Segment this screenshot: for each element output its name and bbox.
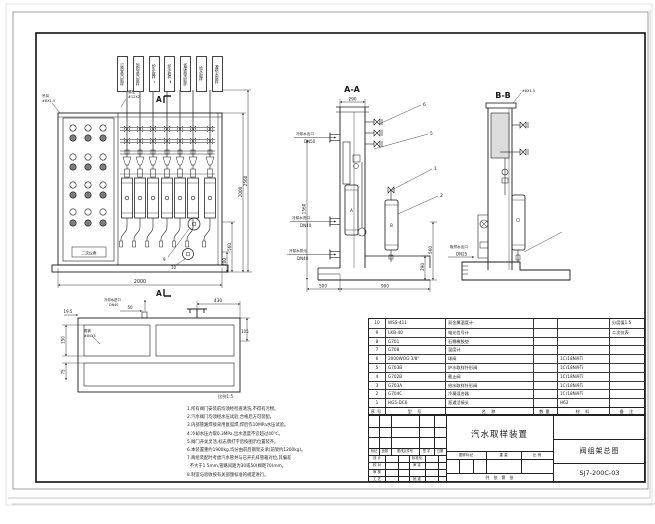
bb-spec-label: #8X1.5 <box>522 89 535 93</box>
lifting-spec: #8X1.5 <box>42 99 55 103</box>
parts-cell: 分度值1.5 <box>609 319 645 328</box>
titleblock-line <box>446 459 553 460</box>
parts-cell: LKB-40 <box>385 329 445 337</box>
aa-callout-5: 5 <box>430 131 433 137</box>
plan-angle-label: 角钢 <box>84 328 91 333</box>
pipe-tag: 省煤器水取样 <box>180 56 191 92</box>
parts-row: 10WSS-411双金属温度计分度值1.5 <box>369 319 644 328</box>
parts-cell: 5 <box>369 364 385 372</box>
parts-cell: 炉水取样针形阀 <box>445 364 533 372</box>
note-line: 5.阀门开关灵活,标志牌打字后按图示位置装齐。 <box>187 439 317 447</box>
stamp-header-weight: 重 量 <box>486 451 521 459</box>
parts-cell: G702B <box>385 373 445 381</box>
titleblock-line <box>553 416 554 483</box>
drawing-number: SJ7-200C-03 <box>553 463 646 482</box>
parts-row: 2G704C冷凝混合器1Cr18Ni9Ti <box>369 389 644 398</box>
parts-cell: 石棉橡胶垫 <box>445 338 533 346</box>
aa-dim-290: 290 <box>349 97 357 102</box>
parts-cell: 给水取样针形阀 <box>445 382 533 390</box>
sign-row-label: 设 计 <box>369 455 385 462</box>
aa-port-drain-dn: DN40 <box>297 256 309 261</box>
parts-cell: 9 <box>369 329 385 337</box>
parts-cell <box>533 319 557 328</box>
parts-cell: 二次仪表 <box>609 329 645 337</box>
rev-header-cell: 标记 <box>369 448 379 455</box>
rev-header-cell: 签 字 <box>419 448 434 455</box>
pipe-tag: 过热蒸汽取样 <box>117 56 128 92</box>
parts-cell: G708 <box>385 346 445 354</box>
parts-row: 62000WOG 3/8"球阀1Cr18Ni9Ti <box>369 354 644 363</box>
aa-dim-500: 500 <box>319 284 327 289</box>
note-line: 2.汽水阀门均须经水压试验,合格后方可装配。 <box>187 414 317 422</box>
parts-cell: 10 <box>369 319 385 328</box>
plan-dim-105: 105 <box>241 329 249 334</box>
bb-title: B-B <box>495 91 511 100</box>
plan-dim-150: 150 <box>61 336 66 344</box>
parts-cell <box>533 373 557 381</box>
parts-cell: 7 <box>369 346 385 354</box>
aa-callout-2: 2 <box>440 193 443 199</box>
stamp-header-scale: 比 例 <box>521 451 553 459</box>
parts-cell: 1Cr18Ni9Ti <box>557 382 609 390</box>
parts-cell <box>533 399 557 407</box>
rev-header-cell: 日期 <box>434 448 446 455</box>
titleblock-line <box>385 455 386 483</box>
parts-row: 3G703A给水取样针形阀1Cr18Ni9Ti <box>369 381 644 390</box>
titleblock-line <box>446 473 553 474</box>
parts-cell: 2000WOG 3/8" <box>385 355 445 363</box>
parts-row: 9LKB-40电光信号计二次仪表 <box>369 328 644 337</box>
parts-cell: 直通活接头 <box>445 399 533 407</box>
aa-port-in-dn: DN40 <box>300 223 312 228</box>
aa-dim-1560: 1560 <box>302 203 307 214</box>
note-line: 6.本装置重约1900kg,均分由前后钢架支承(前架约1200kg)。 <box>187 447 317 455</box>
plan-dim-50: 50 <box>127 305 133 310</box>
rev-header-cell: 更改文件号 <box>391 448 419 455</box>
sign-row-label: 标准化 <box>409 455 425 462</box>
callout-10: 10 <box>171 265 177 270</box>
dim-2000: 2000 <box>238 186 243 197</box>
dim-200: 200 <box>222 258 227 266</box>
aa-port-out-name: 冷却水出口 <box>296 131 314 136</box>
plan-dim-430: 430 <box>214 298 223 304</box>
aa-port-in-name: 冷却水进口 <box>292 215 310 220</box>
aa-callout-6: 6 <box>423 102 426 108</box>
note-line: 8.制造与验收按有关部颁标准的规定进行。 <box>187 472 317 480</box>
pipe-tag: 给水取样 <box>196 56 207 92</box>
bolt-spec: #12X2 <box>128 95 140 99</box>
note-line: 不大于1.5mm,管路间距为30或50(阀距70)mm。 <box>187 463 317 471</box>
parts-cell <box>609 364 645 372</box>
parts-cell <box>533 382 557 390</box>
parts-cell: 温度计 <box>445 346 533 354</box>
parts-table: 10WSS-411双金属温度计分度值1.59LKB-40电光信号计二次仪表8G7… <box>368 318 645 415</box>
parts-cell: 1Cr18Ni9Ti <box>557 355 609 363</box>
callout-9: 9 <box>163 257 166 262</box>
dim-560: 560 <box>227 243 232 251</box>
parts-cell: G703A <box>385 382 445 390</box>
panel-box-label: 二次仪表 <box>81 251 96 256</box>
parts-cell: HG5-DC6 <box>385 399 445 407</box>
sign-row-label: 批 准 <box>409 476 425 483</box>
titleblock-line <box>459 459 460 473</box>
parts-cell: 1 <box>369 399 385 407</box>
aa-vessel-b: B <box>390 223 393 228</box>
parts-cell: WSS-411 <box>385 319 445 328</box>
parts-row: 1HG5-DC6直通活接头H62 <box>369 398 644 407</box>
titleblock-line <box>446 451 553 452</box>
titleblock-line <box>438 455 439 483</box>
parts-cell: 1Cr18Ni9Ti <box>557 364 609 372</box>
stamp-header-mark: 图样标记 <box>446 451 486 459</box>
parts-cell: 8 <box>369 338 385 346</box>
titleblock-line <box>398 455 399 483</box>
lifting-label: 吊耳 <box>42 93 49 98</box>
parts-cell: 截止阀 <box>445 373 533 381</box>
note-line: 4.冷却水压力取0.3MPa,出水温度不宜超过40℃。 <box>187 431 317 439</box>
title-block: 汽水取样装置 图样标记 重 量 比 例 共 张 第 张 阀组架总图 SJ7-20… <box>368 415 645 482</box>
aa-title: A-A <box>344 85 361 94</box>
parts-cell: 电光信号计 <box>445 329 533 337</box>
parts-cell <box>533 390 557 398</box>
titleblock-line <box>553 439 646 440</box>
dim-width: 2000 <box>134 279 146 285</box>
aa-dim-290b: 290 <box>420 263 425 271</box>
plan-dim-19_5: 19.5 <box>64 309 73 314</box>
note-line: 1.所有阀门安装前均须经检查清洗,不得有污物。 <box>187 406 317 414</box>
parts-cell <box>609 373 645 381</box>
parts-cell: 1Cr18Ni9Ti <box>557 373 609 381</box>
parts-row: 7G708温度计 <box>369 345 644 354</box>
sign-row-label: 校 对 <box>369 462 385 469</box>
sign-row-label: 审 定 <box>409 462 425 469</box>
parts-cell: 6 <box>369 355 385 363</box>
section-a-bottom: A <box>156 289 162 298</box>
parts-cell <box>557 338 609 346</box>
pipe-tag: 凝结水取样 <box>212 56 223 92</box>
note-line: 7.两组装配时考虑汽水管并与已开孔排管箱对位,其偏差 <box>187 455 317 463</box>
note-line: 3.内部管路焊接采用氩弧焊,焊后作10MPa水压试验。 <box>187 422 317 430</box>
parts-cell <box>609 355 645 363</box>
parts-cell <box>533 329 557 337</box>
aa-callout-1: 1 <box>434 166 437 172</box>
parts-cell <box>533 355 557 363</box>
notes-block: 1.所有阀门安装前均须经检查清洗,不得有污物。2.汽水阀门均须经水压试验,合格后… <box>187 406 317 480</box>
pipe-tag: 炉水取样Ⅱ <box>164 56 175 92</box>
aa-port-out-dn: DN50 <box>304 139 316 144</box>
titleblock-line <box>553 463 646 464</box>
section-a-top: A <box>156 95 162 104</box>
titleblock-title: 汽水取样装置 <box>446 416 553 451</box>
aa-view <box>287 99 438 292</box>
plan-view <box>62 300 250 392</box>
rev-header-cell: 处数 <box>379 448 391 455</box>
titleblock-line <box>486 451 487 473</box>
pipe-tag: 饱和蒸汽取样 <box>133 56 144 92</box>
parts-cell: 2 <box>369 390 385 398</box>
sign-row-label: 工 艺 <box>369 476 385 483</box>
aa-vessel-a: A <box>350 208 353 213</box>
aa-dim-900: 900 <box>381 284 389 289</box>
titleblock-line <box>521 451 522 473</box>
parts-cell <box>557 319 609 328</box>
parts-cell: 双金属温度计 <box>445 319 533 328</box>
parts-cell <box>609 399 645 407</box>
bb-port-dn: DN25 <box>456 252 468 257</box>
bb-port-name: 取样水出口 <box>450 244 468 249</box>
plan-dim-75: 75 <box>61 369 66 375</box>
parts-cell <box>557 329 609 337</box>
parts-cell: 冷凝混合器 <box>445 390 533 398</box>
parts-cell <box>609 338 645 346</box>
parts-cell <box>609 346 645 354</box>
aa-dim-560: 560 <box>428 246 433 254</box>
parts-cell <box>609 382 645 390</box>
parts-row: 4G702B截止阀1Cr18Ni9Ti <box>369 372 644 381</box>
parts-cell <box>533 338 557 346</box>
plan-inlet-label: 冷却水进口 <box>104 297 121 302</box>
parts-cell: H62 <box>557 399 609 407</box>
parts-cell: G704C <box>385 390 445 398</box>
scale-note: 比例1:5 <box>218 394 233 400</box>
parts-row: 5G703B炉水取样针形阀1Cr18Ni9Ti <box>369 363 644 372</box>
parts-cell: G703B <box>385 364 445 372</box>
parts-cell <box>609 390 645 398</box>
aa-port-drain-name: 冷却水排污 <box>289 248 307 253</box>
parts-cell: 球阀 <box>445 355 533 363</box>
parts-cell <box>533 364 557 372</box>
parts-cell: G701 <box>385 338 445 346</box>
parts-cell: 4 <box>369 373 385 381</box>
dim-2560: 2560 <box>243 175 248 186</box>
parts-cell <box>533 346 557 354</box>
plan-inlet-spec: DN40 <box>109 303 118 307</box>
titleblock-line <box>473 459 474 473</box>
drawing-sheet: 吊耳 #8X1.5 螺栓 #12X2 A A 2000 200 560 2000… <box>0 0 655 524</box>
titleblock-subtitle: 阀组架总图 <box>553 439 646 463</box>
parts-row: 8G701石棉橡胶垫 <box>369 337 644 346</box>
parts-cell: 3 <box>369 382 385 390</box>
pipe-tag: 炉水取样Ⅰ <box>149 56 160 92</box>
sheet-count-row: 共 张 第 张 <box>446 473 553 483</box>
sign-row-label: 审 核 <box>369 469 385 476</box>
parts-cell <box>557 346 609 354</box>
parts-cell: 1Cr18Ni9Ti <box>557 390 609 398</box>
plan-angle-spec: #80X5 <box>84 334 96 338</box>
titleblock-line <box>425 455 426 483</box>
